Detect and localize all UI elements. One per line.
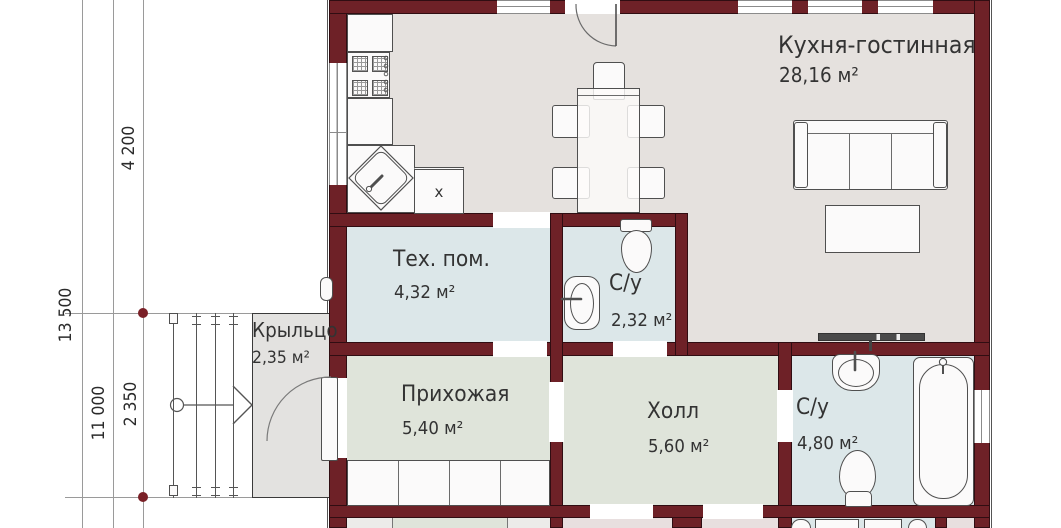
kitchen-sink-cabinet — [347, 145, 415, 213]
window-top-1 — [497, 0, 550, 14]
label-entry-hall: Прихожая — [401, 382, 509, 407]
wardrobe-divider-1 — [398, 461, 399, 505]
label-wc-big: С/у — [796, 395, 829, 420]
stair-rail-post-bottom — [169, 485, 178, 496]
tv-screen — [818, 333, 925, 341]
wc-small-basin-bowl — [570, 283, 594, 324]
dim-marker-top — [138, 308, 148, 318]
sofa-back-line — [808, 133, 933, 134]
wall-tech-wc-vertical — [550, 213, 563, 528]
stove-burner-4 — [372, 80, 388, 96]
floor-plan: 4 200 13 500 11 000 2 350 — [0, 0, 1061, 528]
window-kitchen-left-mullion — [329, 132, 347, 133]
door-hall-wc-small-opening — [613, 341, 667, 357]
window-top-4 — [878, 0, 933, 14]
dining-table-edge-line — [578, 95, 639, 96]
door-hall-wc-big-opening — [777, 390, 793, 442]
wall-lower-stub-center — [672, 517, 702, 528]
wall-bottom-horizontal — [329, 505, 990, 518]
label-entry-hall-area: 5,40 м² — [402, 418, 463, 439]
dim-line-11000 — [113, 0, 114, 528]
floor-lower-room-e — [702, 518, 788, 528]
stove-burner-3 — [352, 80, 368, 96]
label-tech-room: Тех. пом. — [393, 247, 490, 272]
stair-tick-top-2 — [211, 316, 220, 325]
window-kitchen-left — [329, 63, 347, 185]
label-kitchen-living: Кухня-гостинная — [778, 31, 976, 59]
door-porch-leaf — [321, 377, 338, 461]
dim-label-13500: 13 500 — [56, 278, 76, 352]
stair-tick-bottom-3 — [229, 487, 238, 496]
dining-table — [577, 88, 640, 213]
dim-line-13500 — [82, 0, 83, 528]
wall-wc-living-vertical — [675, 213, 688, 356]
stove-burner-1 — [352, 56, 368, 72]
door-bottom-opening-2 — [703, 504, 763, 519]
stair-step-line-1 — [173, 313, 174, 498]
door-entry-top-opening — [565, 0, 620, 14]
kitchen-counter — [347, 98, 393, 145]
floor-lower-room-d — [563, 518, 672, 528]
stair-step-line-4 — [233, 313, 234, 498]
dim-marker-bottom — [138, 492, 148, 502]
window-top-3 — [808, 0, 862, 14]
label-wc-small-area: 2,32 м² — [611, 310, 672, 331]
label-kitchen-living-area: 28,16 м² — [779, 63, 859, 87]
sofa-seat-divider-1 — [849, 133, 850, 189]
wall-exterior-right — [974, 0, 990, 528]
window-top-2 — [738, 0, 792, 14]
floor-hall — [563, 356, 778, 505]
sofa-armrest-left — [794, 122, 808, 188]
lower-fixture-round-1 — [791, 519, 811, 528]
tv-stand-stem — [869, 341, 872, 351]
stove-burner-2 — [372, 56, 388, 72]
label-hall: Холл — [647, 399, 699, 424]
wardrobe-divider-3 — [500, 461, 501, 505]
wc-big-toilet-base — [845, 491, 872, 507]
floor-lower-room-f — [947, 518, 974, 528]
stair-tick-bottom-2 — [211, 487, 220, 496]
lower-fixture-rect-2 — [864, 519, 902, 528]
stair-tick-top-1 — [192, 316, 201, 325]
kitchen-fridge — [347, 14, 393, 52]
dim-label-2350: 2 350 — [121, 367, 141, 441]
label-wc-big-area: 4,80 м² — [797, 433, 858, 454]
dim-label-4200: 4 200 — [119, 111, 139, 185]
wc-big-basin-bowl — [838, 359, 874, 387]
wall-lower-stub-right — [935, 517, 947, 528]
floor-lower-room-a — [347, 518, 392, 528]
coffee-table — [825, 205, 920, 253]
label-porch: Крыльцо — [252, 318, 338, 342]
sofa-body — [793, 120, 948, 190]
door-entryhall-hall-opening — [549, 382, 564, 442]
kitchen-dishwasher: x — [414, 167, 464, 214]
lower-fixture-rect-1 — [815, 519, 859, 528]
dim-line-4200 — [143, 0, 144, 528]
stair-step-line-2 — [196, 313, 197, 498]
sofa-armrest-right — [933, 122, 947, 188]
bathtub-inner — [919, 364, 968, 499]
sofa-seat-divider-2 — [891, 133, 892, 189]
wardrobe-divider-2 — [449, 461, 450, 505]
label-wc-small: С/у — [609, 271, 642, 296]
label-porch-area: 2,35 м² — [252, 348, 310, 368]
dishwasher-x-marker: x — [435, 183, 444, 201]
dim-label-11000: 11 000 — [89, 376, 109, 450]
door-tech-entryhall-opening — [493, 341, 547, 357]
stair-tick-bottom-1 — [192, 487, 201, 496]
window-wc-big-right — [974, 390, 990, 443]
building-outline-right — [991, 0, 992, 528]
stair-tick-top-3 — [229, 316, 238, 325]
stair-step-line-3 — [215, 313, 216, 498]
stair-arrow-head — [233, 386, 252, 424]
label-tech-room-area: 4,32 м² — [394, 282, 455, 303]
floor-lower-room-c — [508, 518, 550, 528]
vent-pipe — [320, 277, 333, 301]
door-kitchen-tech-opening — [493, 212, 550, 228]
door-bottom-opening-1 — [590, 504, 653, 519]
label-hall-area: 5,60 м² — [648, 436, 709, 457]
floor-lower-room-b — [392, 518, 508, 528]
stair-rail-post-top — [169, 313, 178, 324]
